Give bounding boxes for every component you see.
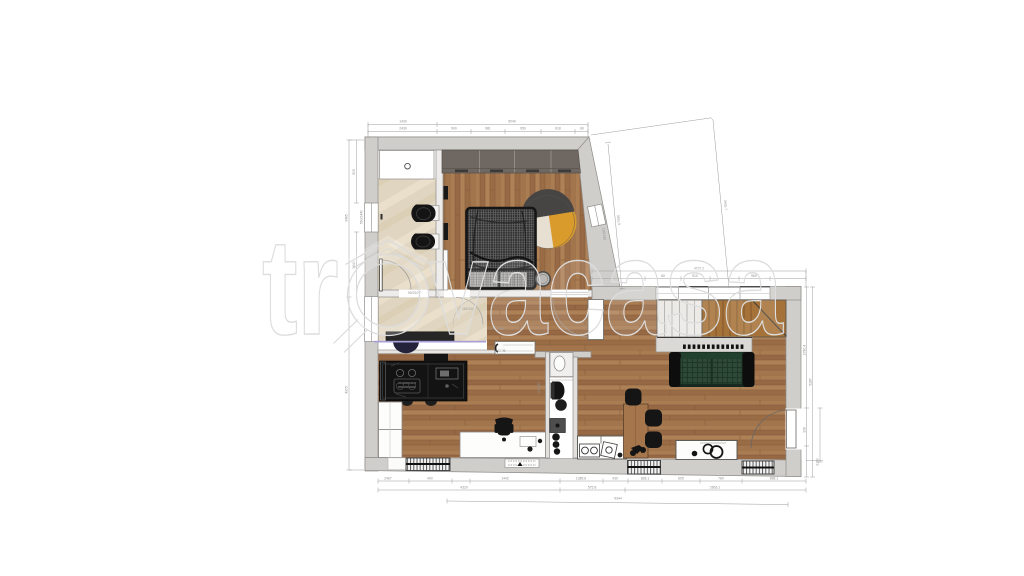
svg-text:9344: 9344 <box>614 497 622 501</box>
svg-text:4320: 4320 <box>460 486 468 490</box>
svg-text:2430: 2430 <box>399 127 407 131</box>
svg-text:1385.6: 1385.6 <box>576 477 586 481</box>
svg-text:120/240: 120/240 <box>537 382 541 394</box>
svg-text:958: 958 <box>803 427 807 433</box>
svg-text:575.8: 575.8 <box>588 486 597 490</box>
svg-text:1430: 1430 <box>399 120 407 124</box>
svg-text:5287: 5287 <box>809 378 813 386</box>
svg-text:4305: 4305 <box>345 386 349 394</box>
svg-text:2160: 2160 <box>816 458 820 466</box>
svg-text:vacasa: vacasa <box>429 212 784 364</box>
svg-text:981: 981 <box>485 127 491 131</box>
svg-text:905: 905 <box>352 169 356 175</box>
svg-text:2780.4: 2780.4 <box>803 345 807 355</box>
svg-text:2467: 2467 <box>384 477 392 481</box>
svg-text:tr: tr <box>262 212 338 364</box>
svg-text:2663.1: 2663.1 <box>710 486 720 490</box>
svg-text:400: 400 <box>427 477 433 481</box>
svg-text:828.1: 828.1 <box>641 477 650 481</box>
svg-text:888.1: 888.1 <box>770 477 779 481</box>
svg-text:560/1440: 560/1440 <box>360 210 364 224</box>
svg-text:605: 605 <box>678 477 684 481</box>
svg-text:950: 950 <box>520 127 526 131</box>
svg-text:900: 900 <box>451 127 457 131</box>
svg-text:618: 618 <box>555 127 561 131</box>
svg-text:1442: 1442 <box>501 477 509 481</box>
svg-text:430: 430 <box>612 477 618 481</box>
svg-text:3465: 3465 <box>345 214 349 222</box>
svg-text:5040: 5040 <box>508 120 516 124</box>
svg-text:780: 780 <box>718 477 724 481</box>
svg-text:60: 60 <box>580 127 584 131</box>
